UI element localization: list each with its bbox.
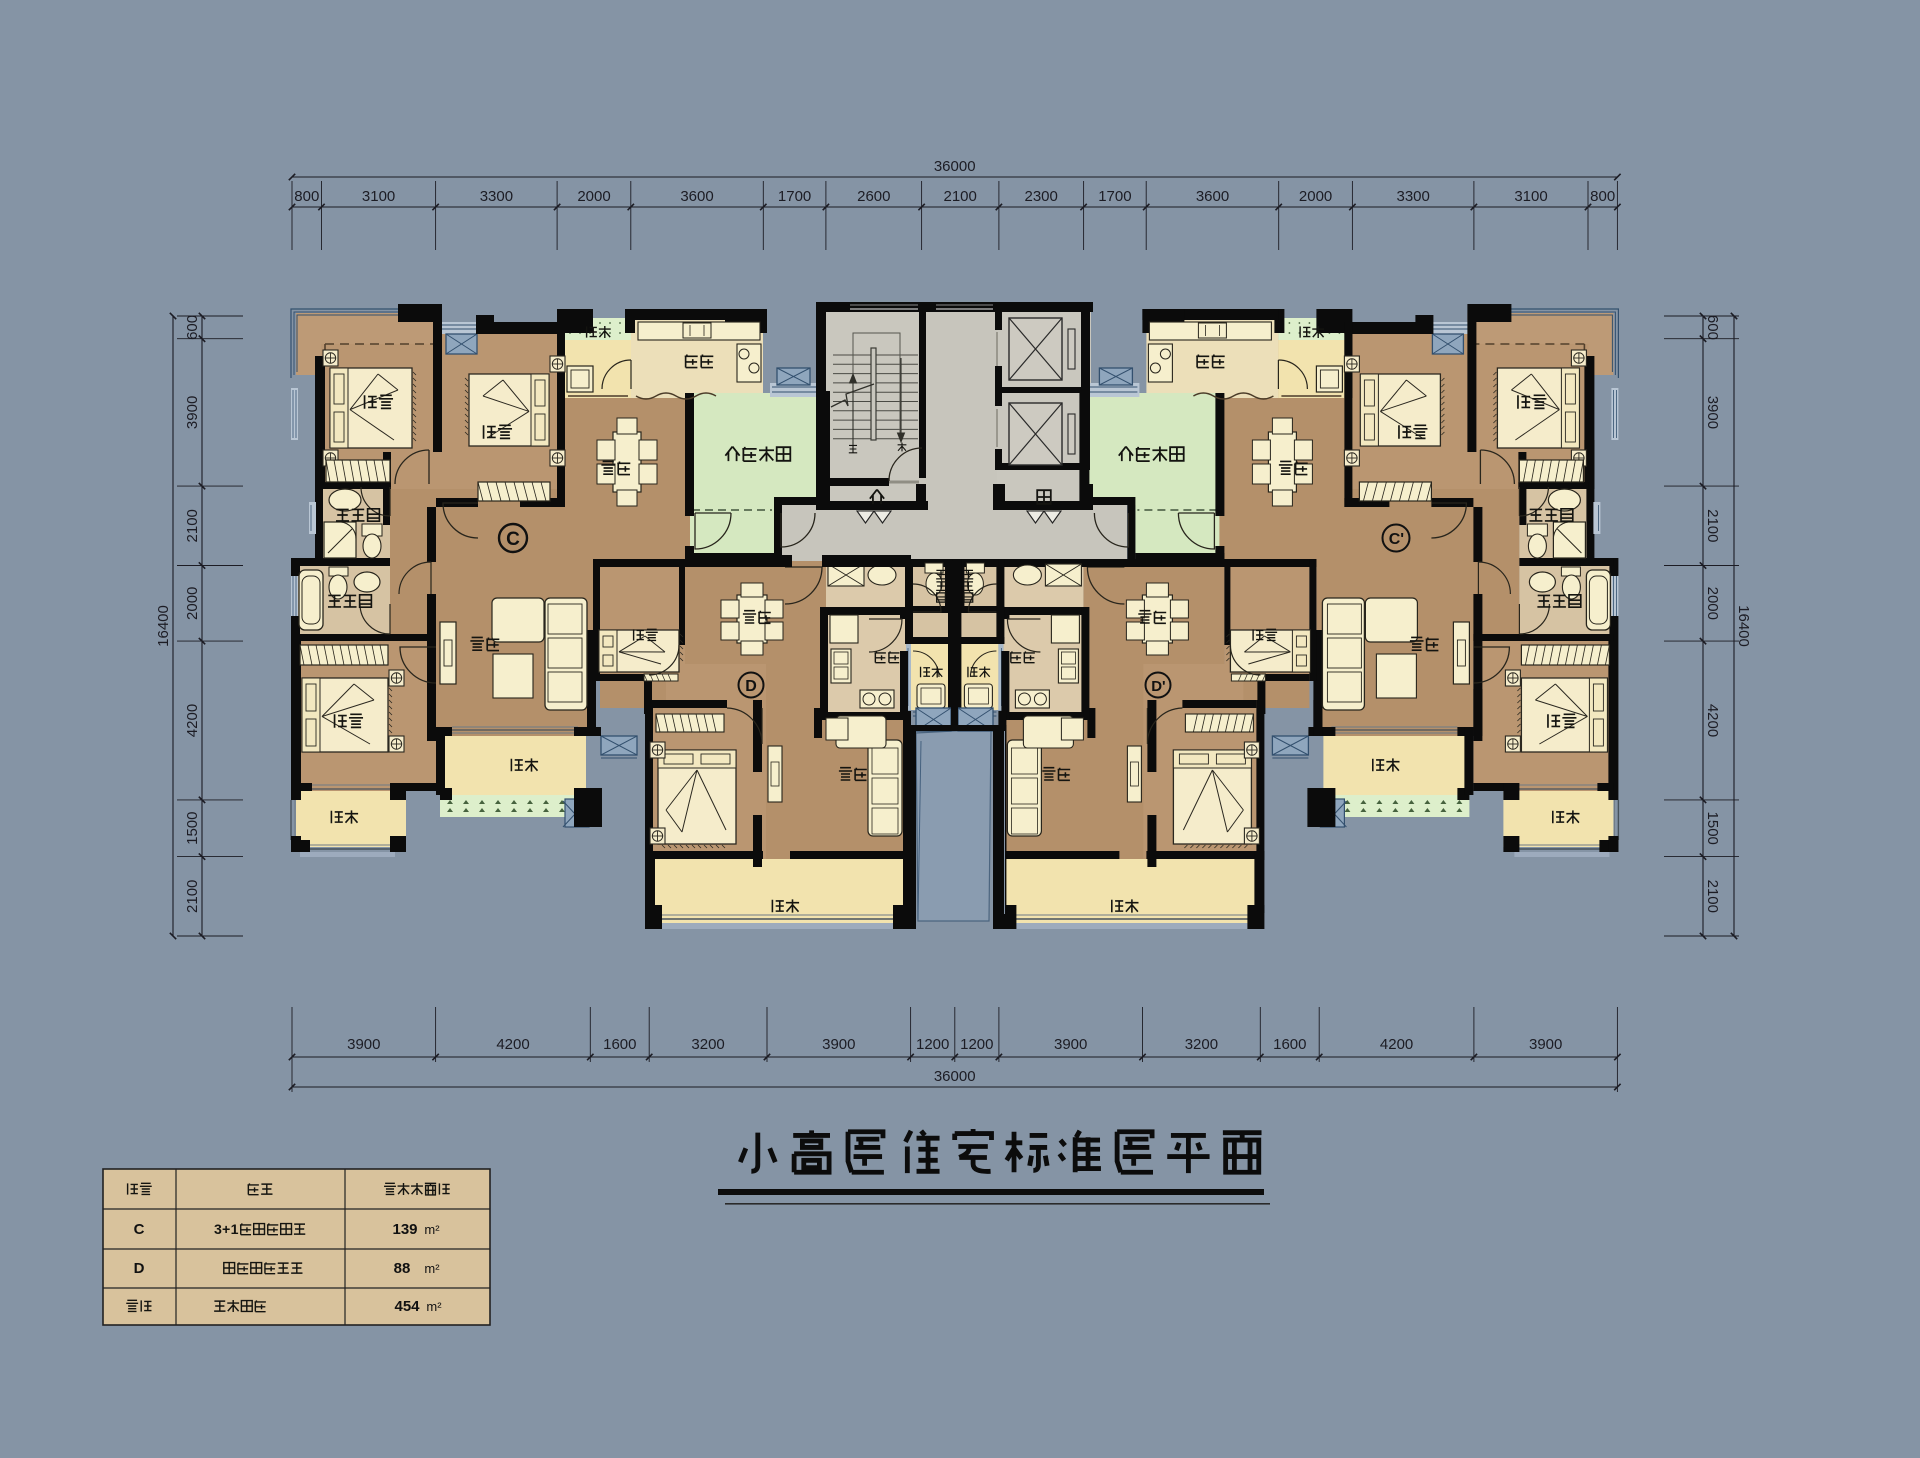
svg-text:36000: 36000 (934, 1068, 976, 1085)
svg-text:1700: 1700 (778, 188, 811, 205)
svg-text:4200: 4200 (184, 704, 201, 737)
svg-text:2000: 2000 (1704, 587, 1721, 620)
svg-text:600: 600 (184, 315, 201, 340)
svg-text:800: 800 (1590, 188, 1615, 205)
svg-text:454: 454 (394, 1298, 420, 1315)
svg-text:1200: 1200 (916, 1036, 949, 1053)
svg-text:3900: 3900 (1054, 1036, 1087, 1053)
svg-text:2600: 2600 (857, 188, 890, 205)
svg-text:C': C' (1389, 531, 1404, 548)
svg-text:3900: 3900 (184, 396, 201, 429)
svg-text:2000: 2000 (1299, 188, 1332, 205)
svg-text:3100: 3100 (1514, 188, 1547, 205)
svg-text:m²: m² (424, 1222, 440, 1237)
svg-text:2100: 2100 (184, 880, 201, 913)
svg-text:D': D' (1151, 678, 1165, 695)
svg-text:1500: 1500 (1704, 812, 1721, 845)
svg-text:1700: 1700 (1098, 188, 1131, 205)
svg-text:16400: 16400 (1735, 605, 1752, 647)
svg-text:139: 139 (392, 1221, 417, 1238)
svg-text:4200: 4200 (1380, 1036, 1413, 1053)
svg-text:C: C (506, 529, 520, 550)
svg-text:36000: 36000 (934, 158, 976, 175)
svg-text:1200: 1200 (960, 1036, 993, 1053)
svg-text:+: + (222, 1222, 230, 1238)
svg-text:m²: m² (424, 1261, 440, 1276)
svg-text:3900: 3900 (1529, 1036, 1562, 1053)
svg-text:3900: 3900 (347, 1036, 380, 1053)
svg-text:D: D (134, 1260, 145, 1277)
svg-text:3900: 3900 (1704, 396, 1721, 429)
svg-text:2100: 2100 (1704, 509, 1721, 542)
svg-text:3600: 3600 (1196, 188, 1229, 205)
svg-text:1500: 1500 (184, 812, 201, 845)
svg-text:800: 800 (294, 188, 319, 205)
svg-text:D: D (745, 678, 757, 695)
svg-text:m²: m² (426, 1299, 442, 1314)
svg-text:1: 1 (231, 1222, 239, 1238)
svg-text:C: C (134, 1221, 145, 1238)
svg-text:88: 88 (394, 1260, 411, 1277)
svg-text:3900: 3900 (822, 1036, 855, 1053)
svg-text:1600: 1600 (603, 1036, 636, 1053)
svg-text:2000: 2000 (577, 188, 610, 205)
svg-text:2300: 2300 (1025, 188, 1058, 205)
svg-text:3200: 3200 (691, 1036, 724, 1053)
svg-text:2100: 2100 (1704, 880, 1721, 913)
svg-text:3600: 3600 (680, 188, 713, 205)
svg-text:3200: 3200 (1185, 1036, 1218, 1053)
svg-text:3100: 3100 (362, 188, 395, 205)
svg-text:1600: 1600 (1273, 1036, 1306, 1053)
svg-text:4200: 4200 (496, 1036, 529, 1053)
svg-text:2100: 2100 (184, 509, 201, 542)
svg-text:600: 600 (1704, 315, 1721, 340)
svg-text:3300: 3300 (1397, 188, 1430, 205)
svg-text:3: 3 (214, 1222, 222, 1238)
svg-text:2000: 2000 (184, 587, 201, 620)
svg-text:4200: 4200 (1704, 704, 1721, 737)
svg-text:3300: 3300 (480, 188, 513, 205)
svg-text:2100: 2100 (944, 188, 977, 205)
svg-text:16400: 16400 (155, 605, 172, 647)
